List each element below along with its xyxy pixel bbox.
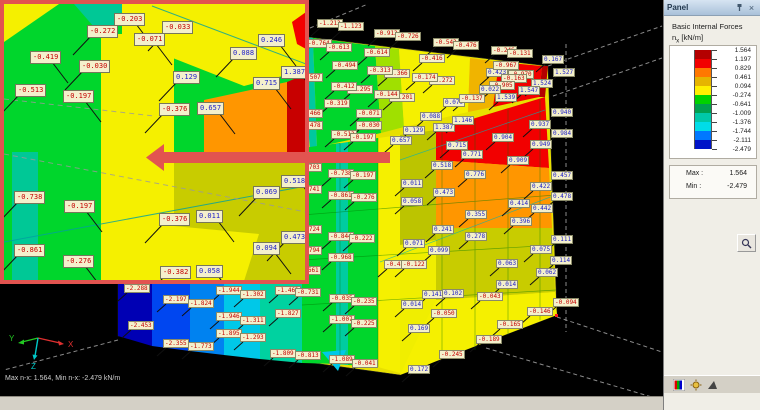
close-icon[interactable]: × [746,2,757,13]
value-label: 0.169 [408,324,430,333]
panel-title: Panel [667,3,733,12]
horizontal-scroll-strip[interactable] [0,396,663,410]
value-label: 0.172 [408,365,430,374]
quantity-subscript: x [676,38,679,45]
value-label: -0.144 [374,90,400,99]
value-label: -0.030 [79,60,110,73]
value-label: -2.453 [128,321,154,330]
value-label: 0.657 [390,136,412,145]
value-label: -0.376 [159,103,190,116]
value-label: -0.043 [477,292,503,301]
value-label: -0.131 [507,49,533,58]
scale-tick-value: -0.274 [718,92,751,99]
value-label: 0.071 [403,239,425,248]
value-label: -1.827 [275,309,301,318]
value-label: 0.518 [431,161,453,170]
value-label: -0.137 [459,94,485,103]
value-label: -0.122 [401,260,427,269]
value-label: 0.904 [492,133,514,142]
value-label: 0.011 [401,179,423,188]
value-label: 0.355 [465,210,487,219]
value-label: -1.824 [188,299,214,308]
y-axis-label: Y [9,334,15,343]
value-label: 0.473 [433,188,455,197]
scale-color-segment [694,77,712,86]
value-label: -0.050 [431,309,457,318]
value-label: 0.141 [422,290,444,299]
x-axis-label: X [68,340,74,349]
value-label: -0.203 [114,13,145,26]
filter-tab-icon[interactable] [706,378,719,391]
value-label: -0.276 [351,193,377,202]
scale-tick-value: -1.744 [718,128,751,135]
value-label: -1.895 [216,329,242,338]
value-label: 0.657 [197,102,224,115]
value-label: -0.319 [324,99,350,108]
value-label: -0.041 [352,359,378,368]
scale-color-segment [694,86,712,95]
value-label: -1.809 [270,349,296,358]
value-label: -0.614 [364,48,390,57]
scale-color-segment [694,131,712,140]
value-label: 1.387 [281,66,308,79]
value-label: 0.940 [551,108,573,117]
value-label: -0.276 [63,255,94,268]
value-label: 0.069 [253,186,280,199]
value-label: 0.241 [432,225,454,234]
status-text: Max n-x: 1.564, Min n-x: -2.479 kN/m [5,375,120,382]
scale-color-segment [694,59,712,68]
scale-tick-value: 0.461 [718,74,751,81]
panel-body: Basic Internal Forces nx [kN/m] 1.5641.1… [664,16,760,393]
value-label: -1.089 [329,355,355,364]
zoom-inset-window: -0.203-0.272-0.071-0.0330.2460.088-0.419… [0,0,309,284]
value-label: 0.062 [536,268,558,277]
value-label: -1.293 [240,333,266,342]
value-label: -1.311 [240,316,266,325]
value-label: -0.476 [453,41,479,50]
value-label: 0.111 [551,235,573,244]
value-label: -0.968 [328,253,354,262]
scale-tick [712,104,717,105]
value-label: 0.129 [173,71,200,84]
max-label: Max : [686,170,703,177]
scale-tick-value: -2.479 [718,146,751,153]
max-value: 1.564 [729,170,747,177]
value-label: -0.313 [367,66,393,75]
value-label: 0.099 [428,246,450,255]
value-label: -0.030 [356,121,382,130]
value-label: 0.715 [446,141,468,150]
pin-icon[interactable] [734,2,745,13]
value-label: 1.547 [518,86,540,95]
color-scale-tab-icon[interactable] [672,378,685,391]
value-label: -0.174 [412,73,438,82]
scale-tick [712,122,717,123]
value-label: -0.094 [553,298,579,307]
scale-tick-value: 0.094 [718,83,751,90]
application-window: -1.213-1.123-0.913-0.726-0.764-0.613-0.5… [0,0,760,410]
scale-tick-value: 1.564 [718,47,751,54]
scale-tick [712,95,717,96]
value-label: 0.776 [464,170,486,179]
value-label: -0.416 [419,54,445,63]
value-label: -0.613 [326,43,352,52]
scale-color-segment [694,104,712,113]
z-axis-label: Z [31,362,36,371]
value-label: 0.771 [461,150,483,159]
value-label: 0.396 [510,217,532,226]
value-label: -0.197 [64,200,95,213]
scale-tick [712,113,717,114]
value-label: -0.494 [332,61,358,70]
value-label: -0.738 [14,191,45,204]
value-label: -1.946 [216,312,242,321]
value-label: 0.088 [230,47,257,60]
value-label: -0.197 [350,133,376,142]
value-label: 0.278 [465,232,487,241]
value-label: 0.102 [442,289,464,298]
value-label: 0.984 [551,129,573,138]
value-label: -0.861 [14,244,45,257]
scale-tick [712,59,717,60]
value-label: -0.419 [30,51,61,64]
value-label: 0.167 [542,55,564,64]
value-label: -1.944 [216,286,242,295]
value-label: 0.094 [253,242,280,255]
value-label: 1.146 [452,116,474,125]
value-label: -1.773 [188,342,214,351]
value-label: 0.909 [507,156,529,165]
panel-header: Panel × [664,0,760,16]
scale-tick-value: -2.111 [718,137,751,144]
color-scale: 1.5641.1970.8290.4610.094-0.274-0.641-1.… [669,45,757,159]
value-label: -0.813 [295,351,321,360]
quantity-unit: [kN/m] [681,33,703,42]
value-label: 0.715 [253,77,280,90]
value-label: -0.222 [349,234,375,243]
value-label: 1.539 [495,93,517,102]
scale-color-segment [694,140,712,149]
value-label: -2.355 [163,339,189,348]
scale-tick [712,77,717,78]
node-marker [555,314,558,317]
value-label: -0.189 [476,335,502,344]
scale-color-segment [694,113,712,122]
value-label: 0.014 [496,280,518,289]
min-value: -2.479 [727,183,747,190]
scale-tick-value: -1.376 [718,119,751,126]
value-label: 0.058 [196,265,223,278]
value-label: 0.088 [420,112,442,121]
3d-viewport[interactable]: -1.213-1.123-0.913-0.726-0.764-0.613-0.5… [0,0,663,410]
value-label: 0.129 [403,126,425,135]
value-label: 0.457 [551,171,573,180]
value-label: -0.861 [328,191,354,200]
value-label: 0.063 [496,259,518,268]
scale-tick [712,50,717,51]
value-label: -2.197 [163,295,189,304]
scale-tick [712,149,717,150]
value-label: 0.014 [401,300,423,309]
min-label: Min : [686,183,701,190]
scale-tick-value: 1.197 [718,56,751,63]
value-label: 0.473 [281,231,308,244]
value-label: -0.033 [162,21,193,34]
value-label: 0.478 [551,192,573,201]
scale-tick-value: -0.641 [718,101,751,108]
value-label: -0.376 [159,213,190,226]
value-label: -1.123 [338,22,364,31]
value-label: -0.197 [350,171,376,180]
scale-color-segment [694,68,712,77]
value-label: 0.058 [401,197,423,206]
value-label: 1.527 [553,68,575,77]
value-label: 0.442 [531,204,553,213]
value-label: 0.246 [258,34,285,47]
scale-tick [712,131,717,132]
scale-color-segment [694,95,712,104]
value-label: 0.518 [281,175,308,188]
value-label: -0.235 [351,297,377,306]
value-label: -0.146 [527,307,553,316]
value-label: -0.071 [356,109,382,118]
value-label: -0.382 [160,266,191,279]
magnifier-button[interactable] [737,234,756,252]
scale-tick [712,140,717,141]
value-label: -0.726 [395,32,421,41]
value-label: 0.949 [530,140,552,149]
value-label: -0.071 [134,33,165,46]
panel-tab-bar [664,375,760,393]
quantity-line: nx [kN/m] [672,33,703,45]
value-label: 0.114 [550,256,572,265]
value-label: 0.422 [530,182,552,191]
scale-tick [712,68,717,69]
value-label: -1.302 [240,290,266,299]
scale-color-segment [694,122,712,131]
value-label: -0.197 [63,90,94,103]
value-label: -0.225 [351,319,377,328]
value-label: -0.412 [331,82,357,91]
scale-tick [712,86,717,87]
result-title: Basic Internal Forces [672,22,742,31]
value-label: -0.731 [295,288,321,297]
results-panel: Panel × Basic Internal Forces nx [kN/m] … [663,0,760,410]
value-label: -2.288 [124,284,150,293]
display-settings-tab-icon[interactable] [689,378,702,391]
value-label: -0.272 [87,25,118,38]
value-label: -0.245 [439,350,465,359]
scale-color-segment [694,50,712,59]
maxmin-box: Max : 1.564 Min : -2.479 [669,165,757,199]
value-label: -0.967 [493,61,519,70]
value-label: 0.937 [529,120,551,129]
axis-triad: X Y Z [6,322,86,382]
scale-tick-value: 0.829 [718,65,751,72]
value-label: 0.414 [508,199,530,208]
value-label: -0.513 [15,84,46,97]
value-label: 0.075 [530,245,552,254]
value-label: -0.165 [497,320,523,329]
value-label: 0.011 [196,210,223,223]
scale-tick-value: -1.009 [718,110,751,117]
